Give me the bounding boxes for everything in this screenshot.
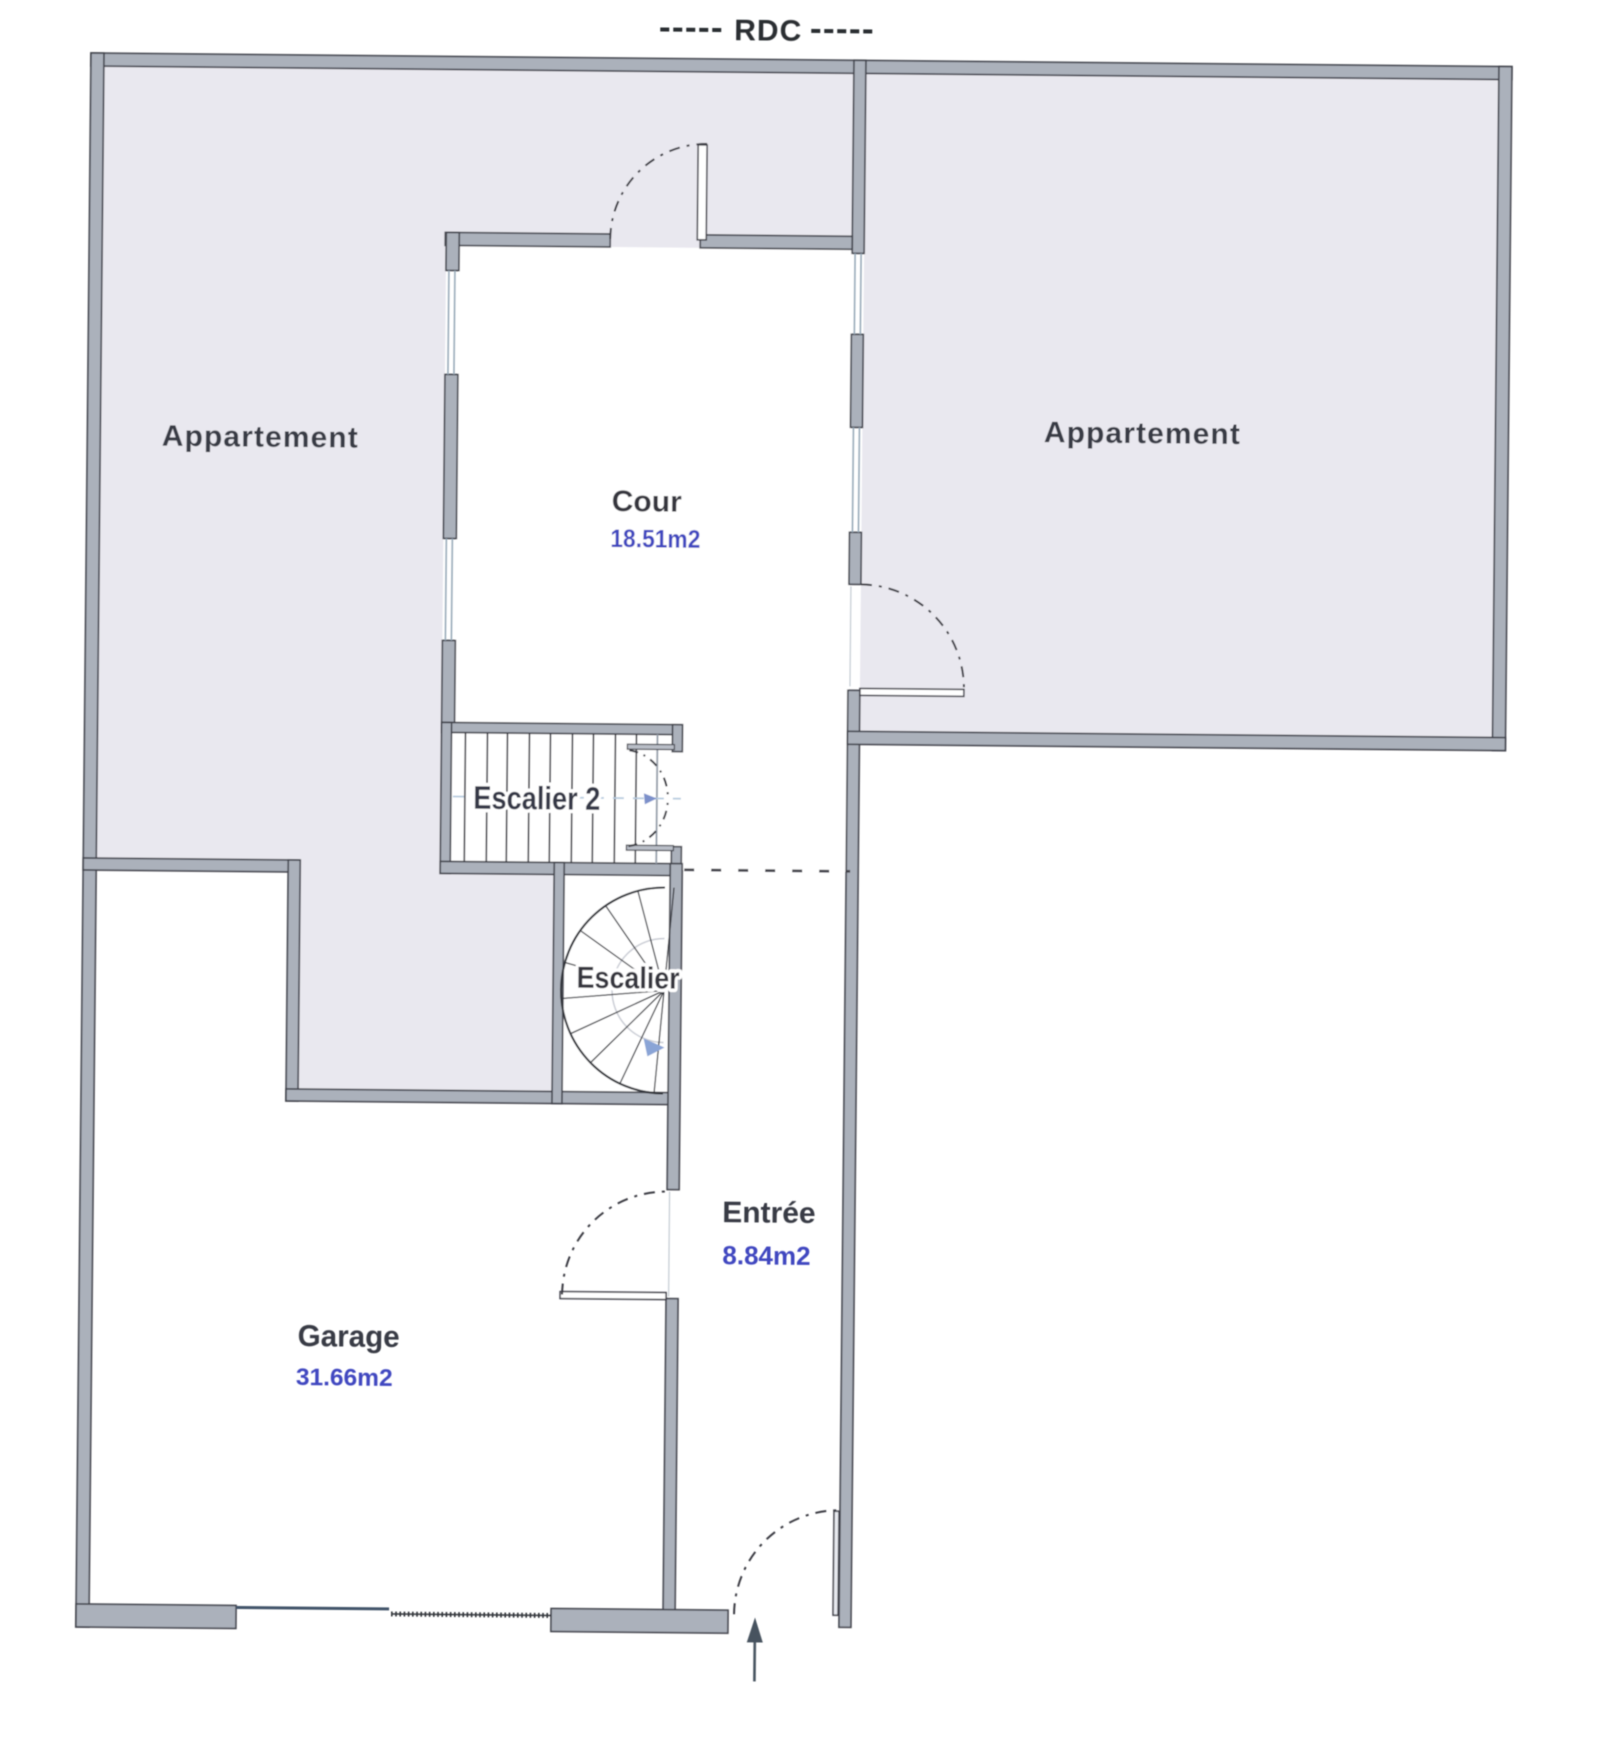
svg-text:RDC: RDC	[734, 14, 802, 48]
svg-text:31.66m2: 31.66m2	[296, 1364, 393, 1392]
svg-text:18.51m2: 18.51m2	[610, 525, 700, 554]
svg-text:Escalier 2: Escalier 2	[473, 780, 600, 817]
svg-text:Entrée: Entrée	[722, 1196, 816, 1230]
svg-text:Appartement: Appartement	[1044, 416, 1241, 451]
svg-text:Escalier: Escalier	[576, 960, 679, 996]
svg-text:Cour: Cour	[612, 485, 683, 519]
svg-text:8.84m2: 8.84m2	[722, 1240, 810, 1271]
svg-text:Appartement: Appartement	[162, 420, 359, 455]
svg-text:Garage: Garage	[298, 1318, 400, 1354]
